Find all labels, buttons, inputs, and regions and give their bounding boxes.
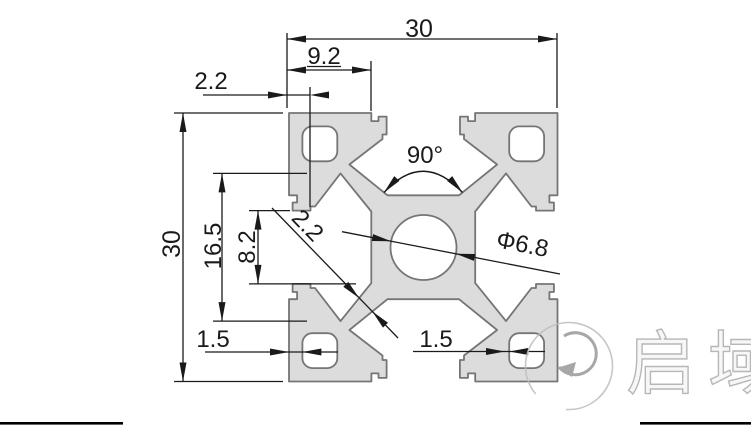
dimension-arrowhead	[180, 363, 187, 382]
dim-lip-thickness-label: 2.2	[194, 68, 227, 95]
dimension-arrowhead	[352, 67, 371, 74]
bottom-border-right	[640, 422, 751, 425]
dim-top-width-label: 30	[405, 15, 433, 43]
dimension-arrowhead	[287, 36, 306, 43]
dimension-arrowhead	[219, 302, 226, 321]
dimension-arrowhead	[268, 92, 287, 99]
dimension-arrowhead	[270, 349, 289, 356]
dimension-arrowhead	[287, 67, 306, 74]
bottom-border-left	[0, 422, 123, 425]
dimension-arrowhead	[538, 36, 557, 43]
dim-left-height-label: 30	[158, 230, 186, 258]
dimension-arrowhead	[310, 92, 329, 99]
dimension-arrowhead	[509, 348, 528, 355]
dimension-arrowhead	[180, 113, 187, 132]
dimension-arrowhead	[255, 211, 262, 230]
dim-cavity-width-label: 16.5	[200, 223, 227, 270]
dim-hole-wall-left-label: 1.5	[196, 326, 229, 353]
brand-text: 启域	[626, 325, 751, 403]
dim-slot-opening-label: 8.2	[234, 230, 261, 263]
profile-drawing-canvas: 30 9.2 2.2 90° 30 16.5 8.2 2.2 Φ6.8 1.5 …	[0, 0, 751, 428]
dim-center-hole-label: Φ6.8	[494, 226, 551, 263]
dimension-arrowhead	[255, 265, 262, 284]
dim-slot-offset-label: 9.2	[307, 43, 340, 70]
dim-angle-label: 90°	[407, 142, 443, 169]
angle-arc	[384, 171, 463, 192]
dimension-arrowhead	[302, 349, 321, 356]
dim-hole-wall-right-label: 1.5	[419, 326, 452, 353]
dimension-arrowhead	[219, 173, 226, 192]
